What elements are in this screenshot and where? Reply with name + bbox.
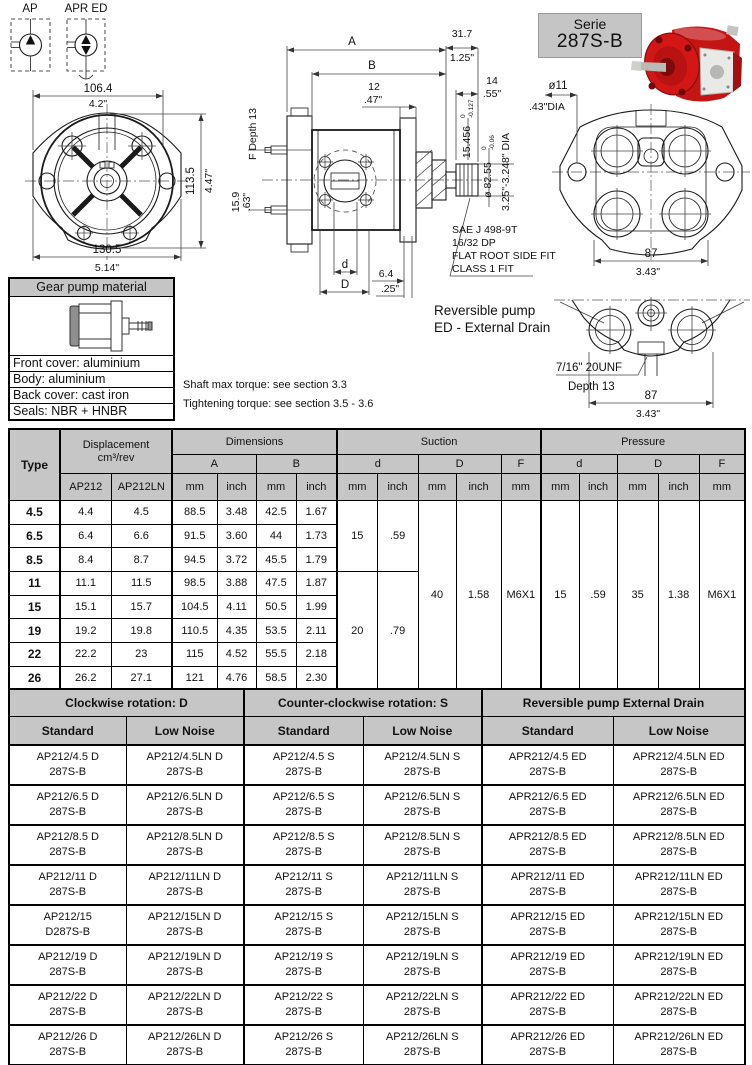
cell: 94.5: [172, 548, 217, 572]
cell: 22: [9, 643, 60, 667]
part-cell: APR212/26 ED 287S-B: [482, 1025, 613, 1065]
cell: 3.48: [217, 501, 256, 525]
part-cell: APR212/4.5LN ED 287S-B: [613, 745, 745, 785]
cell: 50.5: [256, 595, 296, 619]
cell: 40: [418, 501, 456, 691]
unit-header: mm: [699, 474, 745, 501]
table-row: AP212/8.5 D 287S-B AP212/8.5LN D 287S-B …: [9, 825, 745, 865]
cell: 19: [9, 619, 60, 643]
part-cell: AP212/8.5 S 287S-B: [244, 825, 363, 865]
part-cell: APR212/11 ED 287S-B: [482, 865, 613, 905]
cell: 2.30: [296, 666, 337, 690]
reversible-width-mm: 87: [645, 390, 658, 402]
part-cell: AP212/22LN D 287S-B: [126, 985, 244, 1025]
rear-width-in: 3.43": [636, 266, 660, 278]
cell: 4.5: [9, 501, 60, 525]
cell: M6X1: [699, 501, 745, 691]
spline-spec-note: SAE J 498-9T 16/32 DP FLAT ROOT SIDE FIT…: [452, 224, 556, 276]
unit-header: mm: [256, 474, 296, 501]
cell: .79: [377, 572, 418, 690]
part-cell: AP212/11LN S 287S-B: [363, 865, 482, 905]
shaft-dia-mm: ø 82.55: [482, 162, 494, 198]
part-cell: AP212/11 D 287S-B: [9, 865, 126, 905]
pump-photo: [631, 25, 742, 101]
col-header-dimensions: Dimensions: [172, 429, 337, 455]
subheader-standard: Standard: [9, 717, 126, 746]
reversible-pump-label: Reversible pump ED - External Drain: [434, 302, 550, 336]
subheader-standard: Standard: [244, 717, 363, 746]
datasheet-page: .s{stroke:#1a1a1a;stroke-width:1.1;fill:…: [0, 0, 752, 1065]
table-row: AP212/11 D 287S-B AP212/11LN D 287S-B AP…: [9, 865, 745, 905]
part-cell: AP212/26LN S 287S-B: [363, 1025, 482, 1065]
col-header-suction: Suction: [337, 429, 541, 455]
group-header-counter-clockwise: Counter-clockwise rotation: S: [244, 689, 482, 717]
cell: 6.6: [111, 524, 172, 548]
dim-317-mm: 31.7: [452, 28, 473, 40]
reversible-line2: ED - External Drain: [434, 319, 550, 336]
f-depth-label: F Depth 13: [247, 108, 259, 160]
subheader-low-noise: Low Noise: [363, 717, 482, 746]
front-height-in: 4.47": [203, 169, 215, 193]
part-cell: APR212/22 ED 287S-B: [482, 985, 613, 1025]
part-cell: AP212/26 S 287S-B: [244, 1025, 363, 1065]
table-row: AP212/26 D 287S-B AP212/26LN D 287S-B AP…: [9, 1025, 745, 1065]
cell: 58.5: [256, 666, 296, 690]
cell: 8.4: [60, 548, 111, 572]
part-number-table: Clockwise rotation: D Counter-clockwise …: [8, 688, 746, 1065]
reversible-line1: Reversible pump: [434, 302, 550, 319]
dim-64-in: .25": [381, 283, 400, 295]
shaft-dia-tol-hi: 0: [481, 146, 488, 150]
cell: 98.5: [172, 572, 217, 596]
cell: 22.2: [60, 643, 111, 667]
part-cell: AP212/4.5LN D 287S-B: [126, 745, 244, 785]
dim-A-label: A: [348, 36, 356, 48]
cell: 11.5: [111, 572, 172, 596]
cell: 1.38: [658, 501, 699, 691]
part-cell: AP212/19LN S 287S-B: [363, 945, 482, 985]
unit-header: inch: [456, 474, 501, 501]
cell: 104.5: [172, 595, 217, 619]
dim-D-label: D: [341, 279, 349, 291]
cell: 27.1: [111, 666, 172, 690]
cell: 91.5: [172, 524, 217, 548]
part-cell: APR212/26LN ED 287S-B: [613, 1025, 745, 1065]
rear-hole-mm: ø11: [549, 80, 568, 92]
part-cell: AP212/22 S 287S-B: [244, 985, 363, 1025]
cell: 4.76: [217, 666, 256, 690]
cell: 4.5: [111, 501, 172, 525]
unit-header: mm: [617, 474, 658, 501]
unit-header: inch: [579, 474, 617, 501]
part-cell: AP212/8.5 D 287S-B: [9, 825, 126, 865]
dim-14-mm: 14: [486, 75, 498, 87]
part-cell: AP212/8.5LN S 287S-B: [363, 825, 482, 865]
dim-64-mm: 6.4: [379, 268, 394, 280]
tightening-torque-note: Tightening torque: see section 3.5 - 3.6: [183, 395, 373, 414]
hydraulic-symbol-ap: AP: [11, 3, 50, 71]
front-width-mm: 106.4: [84, 83, 113, 95]
material-seals: Seals: NBR + HNBR: [10, 403, 173, 419]
part-cell: APR212/8.5LN ED 287S-B: [613, 825, 745, 865]
cell: 110.5: [172, 619, 217, 643]
torque-notes: Shaft max torque: see section 3.3 Tighte…: [183, 376, 373, 414]
sae-line1: SAE J 498-9T: [452, 224, 556, 237]
drain-depth-label: Depth 13: [568, 381, 615, 393]
cell: 15.1: [60, 595, 111, 619]
cell: .59: [377, 501, 418, 572]
unit-header: inch: [658, 474, 699, 501]
cell: 88.5: [172, 501, 217, 525]
cell: 1.58: [456, 501, 501, 691]
subheader-low-noise: Low Noise: [613, 717, 745, 746]
reversible-width-in: 3.43": [636, 408, 660, 420]
unit-header: inch: [377, 474, 418, 501]
part-cell: AP212/6.5 D 287S-B: [9, 785, 126, 825]
cell: 1.79: [296, 548, 337, 572]
cell: 47.5: [256, 572, 296, 596]
cell: 11.1: [60, 572, 111, 596]
col-header-displacement: Displacement cm³/rev: [60, 429, 172, 474]
part-cell: AP212/11LN D 287S-B: [126, 865, 244, 905]
cell: 11: [9, 572, 60, 596]
cell: 1.99: [296, 595, 337, 619]
dim-B-label: B: [368, 60, 376, 72]
unit-header: mm: [337, 474, 377, 501]
part-cell: APR212/19 ED 287S-B: [482, 945, 613, 985]
col-header-suction-d: d: [337, 455, 418, 474]
dim-d-label: d: [342, 259, 348, 271]
subheader-standard: Standard: [482, 717, 613, 746]
part-cell: AP212/4.5 D 287S-B: [9, 745, 126, 785]
shaft-torque-note: Shaft max torque: see section 3.3: [183, 376, 373, 395]
shaft-tol-hi: 0: [460, 114, 467, 118]
cell: 55.5: [256, 643, 296, 667]
cell: 1.67: [296, 501, 337, 525]
cell: 19.2: [60, 619, 111, 643]
group-header-clockwise: Clockwise rotation: D: [9, 689, 244, 717]
cell: 8.5: [9, 548, 60, 572]
serie-label: Serie: [539, 17, 641, 32]
col-header-b: B: [256, 455, 337, 474]
front-width-in: 4.2": [89, 98, 108, 110]
table-row: AP212/4.5 D 287S-B AP212/4.5LN D 287S-B …: [9, 745, 745, 785]
cell: 42.5: [256, 501, 296, 525]
col-header-a: A: [172, 455, 256, 474]
cell: 1.73: [296, 524, 337, 548]
part-cell: AP212/15LN D 287S-B: [126, 905, 244, 945]
material-pump-icon: [10, 297, 173, 355]
cell: 23: [111, 643, 172, 667]
dim-159-in: .63": [241, 193, 253, 212]
cell: 2.18: [296, 643, 337, 667]
col-header-suction-f: F: [501, 455, 541, 474]
front-overall-mm: 130.5: [93, 244, 122, 256]
part-cell: AP212/11 S 287S-B: [244, 865, 363, 905]
table-row: AP212/22 D 287S-B AP212/22LN D 287S-B AP…: [9, 985, 745, 1025]
cell: 44: [256, 524, 296, 548]
cell: 1.87: [296, 572, 337, 596]
cell: 4.35: [217, 619, 256, 643]
unit-header: inch: [296, 474, 337, 501]
part-cell: APR212/6.5 ED 287S-B: [482, 785, 613, 825]
part-cell: AP212/8.5LN D 287S-B: [126, 825, 244, 865]
part-cell: AP212/26LN D 287S-B: [126, 1025, 244, 1065]
col-header-ap212: AP212: [60, 474, 111, 501]
material-title: Gear pump material: [10, 279, 173, 297]
part-cell: AP212/19LN D 287S-B: [126, 945, 244, 985]
part-cell: AP212/4.5LN S 287S-B: [363, 745, 482, 785]
part-cell: APR212/22LN ED 287S-B: [613, 985, 745, 1025]
cell: 3.60: [217, 524, 256, 548]
table-row: AP212/19 D 287S-B AP212/19LN D 287S-B AP…: [9, 945, 745, 985]
cell: 2.11: [296, 619, 337, 643]
part-cell: APR212/6.5LN ED 287S-B: [613, 785, 745, 825]
part-cell: AP212/6.5LN D 287S-B: [126, 785, 244, 825]
cell: 26: [9, 666, 60, 690]
symbol-ap-label: AP: [22, 3, 38, 15]
shaft-dia-in: 3.25"-3.248" DIA: [500, 133, 512, 211]
dim-12-mm: 12: [368, 81, 380, 93]
part-cell: AP212/6.5LN S 287S-B: [363, 785, 482, 825]
unit-header: mm: [418, 474, 456, 501]
material-front-cover: Front cover: aluminium: [10, 355, 173, 371]
part-cell: AP212/19 D 287S-B: [9, 945, 126, 985]
part-cell: AP212/15LN S 287S-B: [363, 905, 482, 945]
cell: 3.88: [217, 572, 256, 596]
part-cell: AP212/4.5 S 287S-B: [244, 745, 363, 785]
subheader-low-noise: Low Noise: [126, 717, 244, 746]
part-cell: AP212/19 S 287S-B: [244, 945, 363, 985]
col-header-suction-D: D: [418, 455, 501, 474]
dimensions-table: Type Displacement cm³/rev Dimensions Suc…: [8, 428, 746, 691]
material-back-cover: Back cover: cast iron: [10, 387, 173, 403]
cell: 19.8: [111, 619, 172, 643]
front-height-mm: 113.5: [185, 167, 197, 195]
part-cell: APR212/19LN ED 287S-B: [613, 945, 745, 985]
col-header-pressure-d: d: [541, 455, 617, 474]
table-row: AP212/6.5 D 287S-B AP212/6.5LN D 287S-B …: [9, 785, 745, 825]
cell: M6X1: [501, 501, 541, 691]
rear-width-mm: 87: [645, 248, 658, 260]
cell: 20: [337, 572, 377, 690]
cell: 53.5: [256, 619, 296, 643]
hydraulic-symbol-apr-ed: APR ED: [65, 3, 108, 79]
shaft-dim-mm: 15.456: [461, 126, 473, 158]
group-header-reversible: Reversible pump External Drain: [482, 689, 745, 717]
shaft-tol-lo: -0.127: [468, 99, 475, 118]
col-header-pressure-f: F: [699, 455, 745, 474]
part-cell: APR212/4.5 ED 287S-B: [482, 745, 613, 785]
part-cell: AP212/26 D 287S-B: [9, 1025, 126, 1065]
part-cell: APR212/15LN ED 287S-B: [613, 905, 745, 945]
unit-header: inch: [217, 474, 256, 501]
symbol-apr-ed-label: APR ED: [65, 3, 108, 15]
sae-line3: FLAT ROOT SIDE FIT: [452, 250, 556, 263]
cell: 8.7: [111, 548, 172, 572]
unit-header: mm: [172, 474, 217, 501]
col-header-pressure: Pressure: [541, 429, 745, 455]
reversible-rear-view-drawing: 7/16" 20UNF Depth 13 87 3.43": [554, 297, 750, 420]
dim-317-in: 1.25": [450, 52, 474, 64]
cell: 15: [541, 501, 579, 691]
cell: 6.4: [60, 524, 111, 548]
cell: 115: [172, 643, 217, 667]
part-cell: APR212/15 ED 287S-B: [482, 905, 613, 945]
serie-badge: Serie 287S-B: [538, 13, 642, 58]
col-header-ap212ln: AP212LN: [111, 474, 172, 501]
part-cell: AP212/6.5 S 287S-B: [244, 785, 363, 825]
table-row: 4.5 4.4 4.5 88.5 3.48 42.5 1.67 15 .59 4…: [9, 501, 745, 525]
cell: 15: [9, 595, 60, 619]
sae-line4: CLASS 1 FIT: [452, 263, 556, 276]
rear-hole-in: .43"DIA: [529, 101, 565, 113]
cell: 35: [617, 501, 658, 691]
material-body: Body: aluminium: [10, 371, 173, 387]
part-cell: AP212/22 D 287S-B: [9, 985, 126, 1025]
cell: 15: [337, 501, 377, 572]
cell: 26.2: [60, 666, 111, 690]
sae-line2: 16/32 DP: [452, 237, 556, 250]
serie-number: 287S-B: [539, 32, 641, 53]
cell: 3.72: [217, 548, 256, 572]
part-cell: AP212/22LN S 287S-B: [363, 985, 482, 1025]
col-header-pressure-D: D: [617, 455, 699, 474]
cell: 6.5: [9, 524, 60, 548]
part-cell: AP212/15 S 287S-B: [244, 905, 363, 945]
cell: 15.7: [111, 595, 172, 619]
cell: 121: [172, 666, 217, 690]
front-view-drawing: 106.4 4.2" 113.5 4.47" 130.5 5.14": [25, 83, 215, 274]
table-row: AP212/15 D287S-B AP212/15LN D 287S-B AP2…: [9, 905, 745, 945]
unit-header: mm: [541, 474, 579, 501]
material-box: Gear pump material Front cover: aluminiu…: [8, 277, 175, 421]
front-overall-in: 5.14": [95, 262, 119, 274]
rear-view-drawing: ø11 .43"DIA 87 3.43": [529, 80, 750, 278]
col-header-type: Type: [9, 429, 60, 501]
cell: 45.5: [256, 548, 296, 572]
part-cell: AP212/15 D287S-B: [9, 905, 126, 945]
part-cell: APR212/8.5 ED 287S-B: [482, 825, 613, 865]
part-cell: APR212/11LN ED 287S-B: [613, 865, 745, 905]
cell: 4.52: [217, 643, 256, 667]
dim-12-in: .47": [364, 94, 383, 106]
dim-14-in: .55": [483, 88, 502, 100]
cell: 4.4: [60, 501, 111, 525]
unit-header: mm: [501, 474, 541, 501]
cell: .59: [579, 501, 617, 691]
shaft-dia-tol-lo: -0.06: [489, 135, 496, 150]
cell: 4.11: [217, 595, 256, 619]
